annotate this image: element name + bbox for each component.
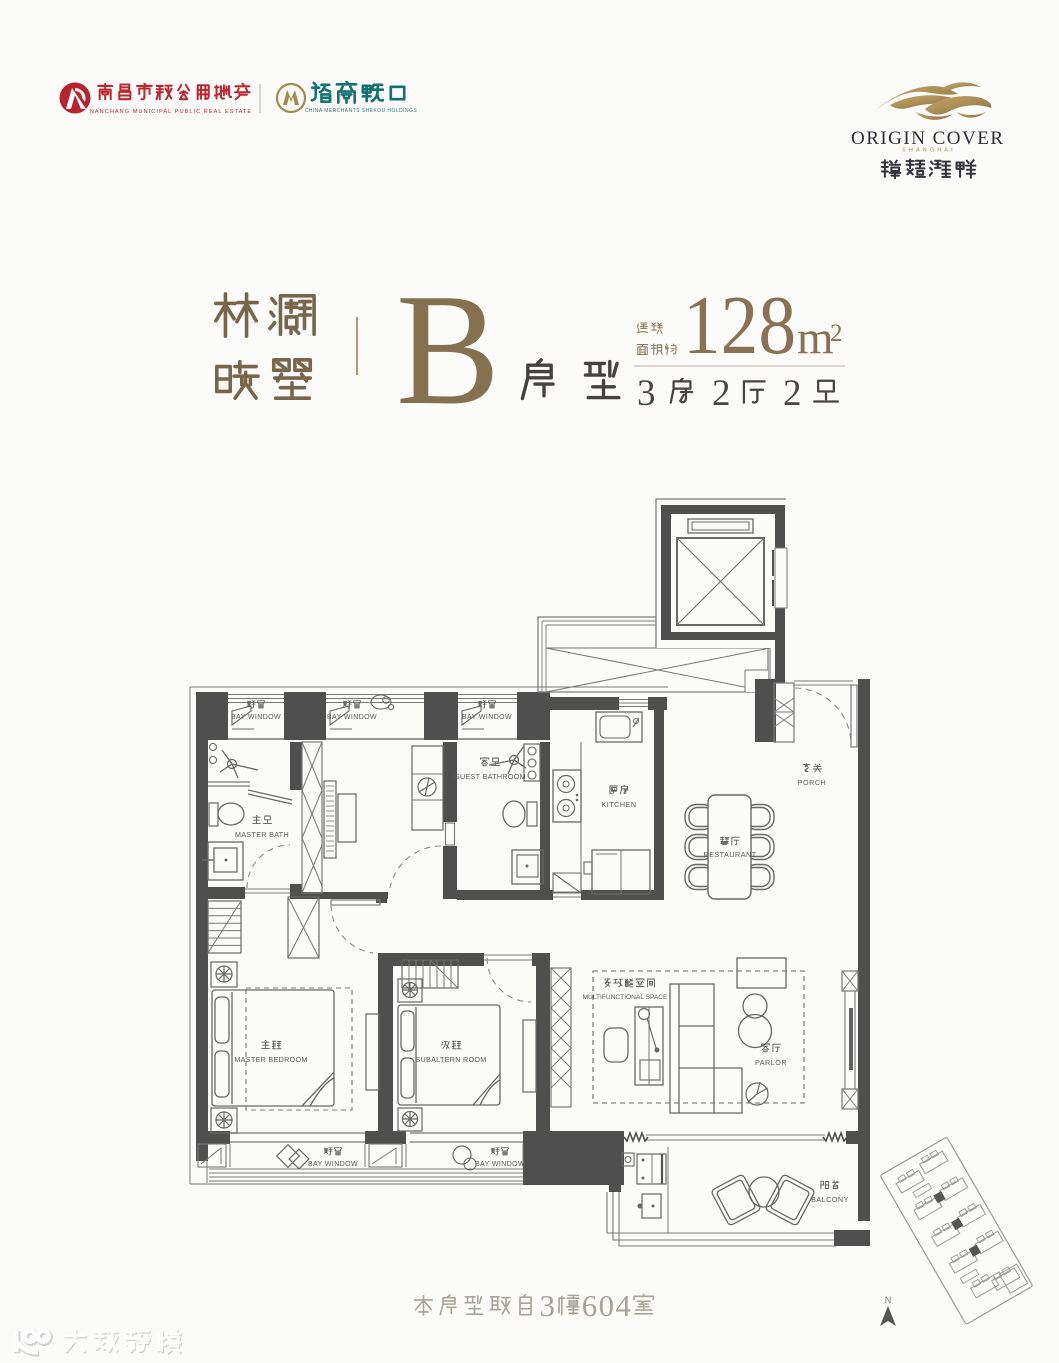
svg-text:SUBALTERN ROOM: SUBALTERN ROOM <box>415 1055 486 1064</box>
svg-text:ORIGIN COVER: ORIGIN COVER <box>851 128 1003 149</box>
svg-text:6: 6 <box>582 1288 598 1323</box>
svg-text:N: N <box>885 1295 892 1305</box>
svg-text:3: 3 <box>637 373 656 414</box>
svg-text:PARLOR: PARLOR <box>755 1058 787 1067</box>
svg-text:128: 128 <box>683 279 796 372</box>
svg-text:MASTER BATH: MASTER BATH <box>235 830 289 839</box>
svg-text:2: 2 <box>830 320 843 347</box>
svg-text:GUEST BATHROOM: GUEST BATHROOM <box>454 772 526 781</box>
svg-text:KITCHEN: KITCHEN <box>601 800 636 809</box>
svg-text:SHANGHAI: SHANGHAI <box>902 148 956 154</box>
svg-text:BAY WINDOW: BAY WINDOW <box>327 714 377 721</box>
svg-text:BALCONY: BALCONY <box>811 1195 849 1204</box>
svg-text:BAY WINDOW: BAY WINDOW <box>308 1161 358 1168</box>
svg-text:m: m <box>797 312 834 364</box>
svg-text:RESTAURANT: RESTAURANT <box>703 850 756 859</box>
svg-text:BAY WINDOW: BAY WINDOW <box>475 1161 525 1168</box>
svg-text:PORCH: PORCH <box>798 778 826 787</box>
svg-text:0: 0 <box>599 1288 615 1323</box>
svg-text:MASTER BEDROOM: MASTER BEDROOM <box>234 1055 307 1064</box>
svg-text:MULTIFUNCTIONAL SPACE: MULTIFUNCTIONAL SPACE <box>583 994 668 1001</box>
svg-text:3: 3 <box>540 1288 556 1323</box>
svg-text:BAY WINDOW: BAY WINDOW <box>231 714 281 721</box>
svg-text:4: 4 <box>615 1288 631 1323</box>
svg-text:B: B <box>396 260 500 438</box>
svg-text:NANCHANG MUNICIPAL PUBLIC REAL: NANCHANG MUNICIPAL PUBLIC REAL ESTATE <box>90 109 252 115</box>
svg-text:CHINA MERCHANTS SHEKOU HOLDING: CHINA MERCHANTS SHEKOU HOLDINGS <box>305 108 418 114</box>
svg-text:2: 2 <box>783 373 802 414</box>
svg-text:BAY WINDOW: BAY WINDOW <box>462 714 512 721</box>
svg-text:2: 2 <box>712 373 731 414</box>
